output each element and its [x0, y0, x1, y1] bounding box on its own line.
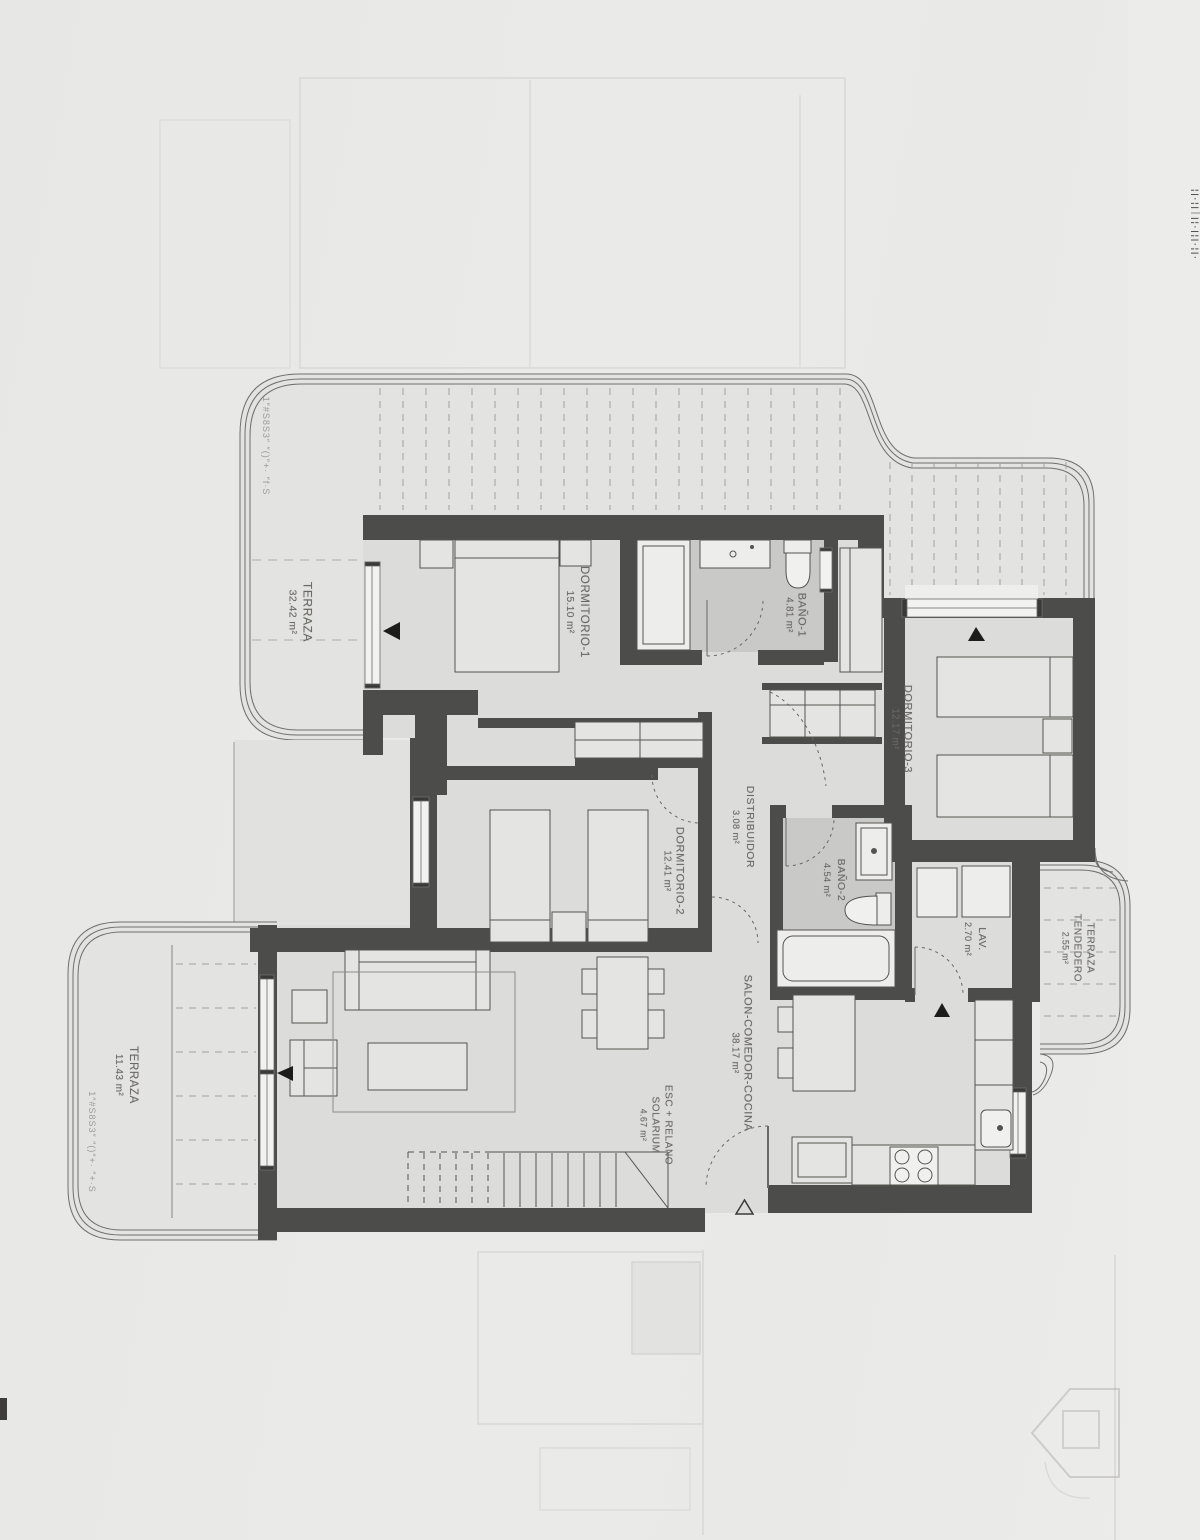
edge-marks-right: ¦|·¦|׀|¦·|¦|·¦|·	[1191, 189, 1200, 261]
vanity-bano2	[856, 823, 892, 880]
kitchen-cabinet-block	[792, 1137, 852, 1183]
shower-bano1	[637, 540, 690, 650]
kitchen-sink	[981, 1110, 1011, 1147]
room-label-lavadero: LAV. 2.70 m²	[962, 922, 988, 956]
edge-annotation-top-left: 1″#S8S3″ ″()″+· ″f·S	[261, 397, 271, 496]
room-label-dormitorio-1: DORMITORIO-1 15.10 m²	[563, 566, 591, 658]
closet-dormitorio3	[770, 690, 875, 737]
bed-dormitorio3-b	[937, 755, 1073, 817]
sofa	[345, 950, 490, 1010]
room-label-dormitorio-3: DORMITORIO-3 12.17 m²	[888, 685, 915, 773]
bed-dormitorio2-b	[588, 810, 648, 942]
closet-column	[840, 548, 882, 672]
toilet-bano1	[784, 540, 811, 588]
window-bano1	[820, 548, 832, 592]
window-dormitorio3	[902, 585, 1042, 617]
window-dormitorio2	[413, 797, 429, 887]
bed-dormitorio2-a	[490, 810, 550, 942]
room-label-terraza-tendedero: TERRAZA TENDEDERO 2.55 m²	[1059, 914, 1096, 982]
room-label-distribuidor: DISTRIBUIDOR 3.08 m²	[730, 786, 756, 868]
room-label-escalera-solarium: ESC + RELANO SOLARIUM 4.67 m²	[637, 1085, 674, 1165]
room-label-bano-1: BAÑO-1 4.81 m²	[782, 593, 809, 638]
edge-annotation-bottom-left: 1″#S8S3″ ″()″+· ″+·S	[87, 1091, 97, 1192]
entrance-opening	[705, 1186, 768, 1212]
side-patio-area	[234, 740, 415, 928]
window-salon	[260, 975, 274, 1170]
terraza-left-area	[68, 922, 277, 1240]
room-label-terraza-left: TERRAZA 11.43 m²	[112, 1046, 140, 1104]
nightstand	[560, 540, 591, 566]
bed-dormitorio3-a	[937, 657, 1073, 717]
room-label-bano-2: BAÑO-2 4.54 m²	[821, 859, 847, 902]
coffee-table	[368, 1043, 467, 1090]
bathtub-bano2	[777, 930, 895, 987]
kitchen-hob	[890, 1147, 938, 1185]
page-edge-mark	[0, 1398, 7, 1420]
floor-plan-drawing	[0, 0, 1200, 1540]
armchair	[290, 1040, 337, 1096]
window-dormitorio1	[365, 562, 380, 688]
nightstand	[1043, 719, 1072, 753]
nightstand	[420, 540, 453, 568]
vanity-bano1	[700, 540, 770, 568]
house-logo-watermark	[1032, 1389, 1119, 1498]
washer	[962, 866, 1010, 917]
bed-dormitorio1	[455, 540, 559, 672]
washer	[917, 868, 957, 917]
side-table	[292, 990, 327, 1023]
nightstand	[552, 912, 586, 942]
room-label-salon-comedor-cocina: SALON-COMEDOR-COCINA 38.17 m²	[728, 975, 755, 1132]
page-edge-column	[1128, 0, 1200, 1540]
closet-dormitorio1	[575, 722, 703, 758]
room-label-terraza-top: TERRAZA 32.42 m²	[285, 582, 314, 642]
scanned-floor-plan-page: TERRAZA 32.42 m² DORMITORIO-1 15.10 m² B…	[0, 0, 1200, 1540]
room-label-dormitorio-2: DORMITORIO-2 12.41 m²	[660, 827, 687, 915]
